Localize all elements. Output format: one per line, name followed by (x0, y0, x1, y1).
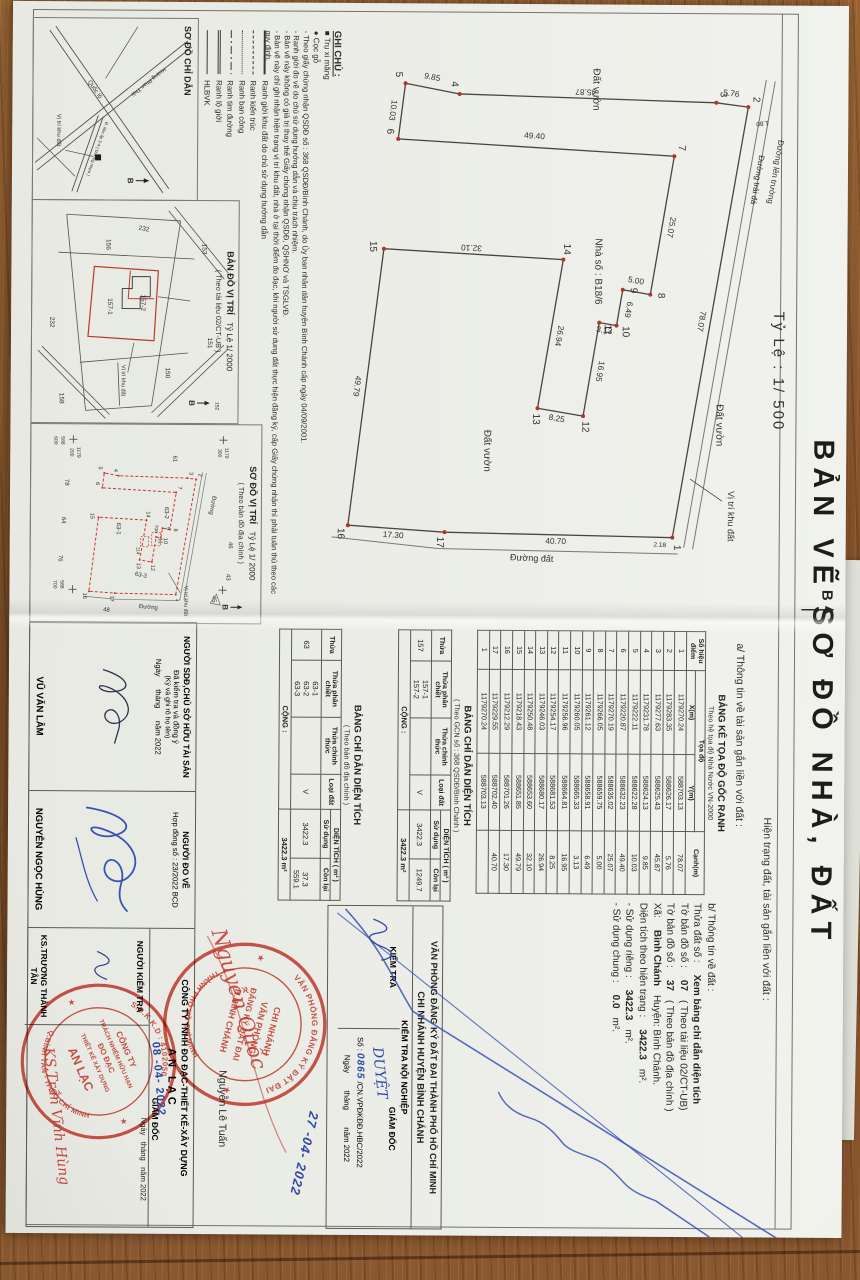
boundary-corner-dot (161, 527, 163, 529)
edge-length-label: 49.40 (524, 130, 546, 141)
coord-cell: 588624.13 (639, 754, 651, 831)
parcel-number-label: 158 (58, 393, 65, 404)
boundary-corner-dot (396, 137, 400, 141)
corner-number: 3 (188, 472, 194, 475)
land-info-value: 37 (663, 980, 677, 991)
edge-length-label: 9.85 (424, 70, 442, 83)
coord-cell: 13 (536, 631, 548, 670)
land-info-note: ( Theo tài liệu 02/CT-UB) (675, 1000, 689, 1111)
boundary-corner-dot (175, 594, 177, 596)
section-a-heading: a/ Thông tin về tài sản gắn liền với đất… (733, 643, 746, 827)
sketch-boundary (41, 346, 109, 414)
coord-cell: 1179218.43 (512, 669, 524, 753)
location-map-source: ( Theo tài liệu 02/CT-UB ) (213, 200, 223, 422)
grid-cross (218, 586, 226, 594)
owner-signature-cell: NGƯỜI SDĐ,CHỦ SỞ HỮU TÀI SẢN Đã kiểm tra… (29, 622, 196, 792)
legend-label: Ranh kiến trúc (248, 80, 257, 130)
edge-length-label: 5.00 (627, 274, 645, 287)
coord-cell: 588703.13 (674, 754, 686, 831)
land-info-row: Tờ bản đồ số :37( Theo bản đồ địa chính … (662, 903, 677, 1112)
area-data-row: 6363-163-263-3V3422.3 37.3559.1 (290, 629, 322, 900)
road-name-label: Đường (207, 495, 216, 515)
registry-office-block: VĂN PHÒNG ĐĂNG KÝ ĐẤT ĐAI THÀNH PHỐ HỒ C… (326, 905, 444, 1230)
land-info-block: b/ Thông tin về đất :Thửa đất số :Xem bả… (607, 903, 717, 1112)
con-lai-cell: 37.3559.1 (290, 859, 320, 901)
parcel-number-label: 157-1 (106, 298, 113, 315)
area-table-subtitle: ( Theo GCN số : 368 QSDĐ/Bình Chánh ) (452, 630, 463, 902)
land-info-heading: b/ Thông tin về đất : (703, 903, 718, 1112)
coord-cell: 588632.23 (616, 754, 628, 831)
grid-cross (69, 435, 77, 443)
road-name-label: Đ. liên ấp 3-4 ( Đường nhựa ) (86, 121, 110, 177)
coord-cell: 588622.28 (627, 754, 639, 831)
col-point: Số hiệu điểm (686, 632, 705, 671)
land-info-value: 3422.3 (622, 990, 636, 1021)
surveyor-signature-cell: NGƯỜI ĐO VẼ Hợp đồng số : 23/2022 BCD NG… (28, 791, 195, 929)
area-table-subtitle: ( Theo bản đồ địa chính ) (342, 629, 353, 901)
north-arrow: B (799, 590, 835, 617)
coord-cell: 16 (501, 630, 513, 669)
index-map-title: SƠ ĐỒ CHỈ DẪN (182, 26, 192, 96)
coord-cell: 588635.02 (604, 754, 616, 831)
document-sheet: BẢN VẼ SƠ ĐỒ NHÀ, ĐẤT Hiện trạng đất, tà… (5, 1, 849, 1238)
land-info-note: ( Theo bản đồ địa chính ) (662, 1000, 676, 1112)
grid-label: 1179 (75, 447, 81, 458)
total-label-cell: CỘNG : (279, 629, 292, 809)
check-cell: KIỂM TRA (338, 906, 401, 1029)
document-title: BẢN VẼ SƠ ĐỒ NHÀ, ĐẤT (802, 156, 842, 1230)
col-y: Y(m) (685, 754, 695, 831)
boundary-corner-dot (382, 247, 386, 251)
location-map-title-text: BẢN ĐỒ VỊ TRÍ (225, 251, 235, 315)
legend-label: Ranh giới khu đất do chủ sử dụng hướng d… (259, 80, 269, 239)
grid-cross (219, 436, 227, 444)
coordinate-table: BẢNG KÊ TỌA ĐỘ GỐC RANHTheo hệ tọa độ Nh… (476, 630, 727, 896)
coord-cell: 9 (582, 631, 594, 670)
sketch-boundary (67, 214, 181, 221)
document-number-label: Số : (356, 1037, 365, 1051)
grid-label: 1179 (223, 448, 229, 459)
boundary-corner-dot (648, 293, 652, 297)
boundary-corner-dot (88, 590, 90, 592)
land-info-key: - Sử dụng riêng : (622, 903, 636, 978)
boundary-corner-dot (581, 414, 585, 418)
coord-cell: 1179266.05 (593, 670, 605, 754)
area-col-header: Thửa (431, 630, 451, 661)
parcel-number-label: 706 (153, 525, 159, 533)
land-info-key: Tờ bản đồ số : (663, 903, 677, 968)
site-pointer-label: Vị trí khu đất (182, 586, 188, 617)
corner-number: 14 (561, 244, 572, 256)
stamp-star: ★ (66, 997, 78, 1008)
coord-row: 161179212.29588701.2617.30 (500, 630, 513, 893)
corner-number: 15 (89, 513, 95, 519)
area-table-title: BẢNG CHỈ DẪN DIỆN TÍCH (461, 630, 474, 902)
coord-row: 51179222.11588622.2810.03 (627, 631, 640, 894)
area-table-grid: ThửaThửa phân chiếtThửa chính thứcLoại đ… (397, 629, 453, 901)
road-name-label: Đường (139, 604, 158, 611)
north-letter: B (818, 590, 835, 601)
area-table-title: BẢNG CHỈ DẪN DIỆN TÍCH (351, 629, 364, 901)
coord-cell: 78.07 (673, 831, 685, 894)
area-total-row: CỘNG :3422.3 m² (397, 630, 411, 901)
north-letter: B (126, 178, 135, 184)
surveyor-cell-title: NGƯỜI ĐO VẼ (181, 831, 191, 888)
road-line (332, 537, 678, 554)
coord-cell: 17.30 (500, 830, 512, 893)
legend-line-sample (253, 30, 254, 74)
parcel-survey-map: 123456789101112131415161778.075.7645.879… (320, 29, 793, 580)
cadastral-sketch-box: 1179300117920058860058870012345678910111… (29, 423, 262, 624)
location-map-scale: Tỷ Lệ 1/ 2000 (225, 322, 234, 371)
legend-row: Ranh giới khu đất do chủ sử dụng hướng d… (258, 30, 271, 239)
land-info-note: m². (635, 1069, 649, 1084)
boundary-corner-dot (672, 154, 676, 158)
coord-cell: 3.13 (569, 831, 581, 894)
corner-number: 17 (108, 596, 114, 602)
sketch-boundary (80, 352, 188, 363)
owner-cell-title: NGƯỜI SDĐ,CHỦ SỞ HỮU TÀI SẢN (181, 636, 192, 778)
total-value-cell: 3422.3 m² (397, 810, 410, 901)
boundary-corner-dot (103, 472, 105, 474)
edge-length-label: 3.13 (596, 324, 614, 337)
land-info-value: 07 (676, 980, 690, 991)
sketch-road (49, 30, 164, 193)
area-data-row: 157157-1157-2V3422.31249.7 (409, 630, 432, 901)
land-info-key: - Sử dụng chung : (608, 903, 622, 983)
boundary-corner-dot (195, 478, 197, 480)
parcel-number-label: 63-1 (115, 523, 121, 536)
parcel-number-label: 232 (138, 225, 150, 234)
sketch-road (55, 26, 170, 189)
coord-row: 91179261.12588658.916.49 (581, 631, 594, 894)
site-pointer-label: Vị trí khu đất (726, 491, 736, 542)
area-col-con-lai: Còn lại (430, 859, 440, 901)
edge-length-label: 17.30 (383, 529, 405, 540)
coord-table-subtitle: Theo hệ tọa độ Nhà Nước VN-2000 (706, 631, 717, 895)
coord-cell: 1179212.29 (500, 669, 512, 753)
land-info-key: Diện tích theo hiện trạng : (635, 903, 649, 1018)
boundary-corner-dot (535, 406, 539, 410)
road-line (85, 596, 178, 600)
road-name-label: Đường trải đá (749, 155, 767, 206)
legend-line-sample (229, 30, 231, 74)
north-arrow-icon (144, 178, 150, 183)
corner-number: 5 (393, 72, 404, 78)
coord-row: 71179270.19588635.0225.07 (604, 631, 617, 894)
boundary-corner-dot (146, 519, 148, 521)
site-pointer-label: Vị trí khu đất (55, 114, 61, 147)
coord-cell: 2 (663, 631, 675, 670)
parcel-number-label: 63-2 (163, 507, 169, 520)
coord-cell: 1179250.48 (524, 670, 536, 754)
surveyor-contract: Hợp đồng số : 23/2022 BCD (170, 812, 180, 908)
parcel-number-label: 48 (103, 607, 111, 614)
coord-row: 131179246.03588680.1726.94 (534, 631, 547, 894)
office-date-line: Ngày tháng năm 2022 (342, 1055, 352, 1162)
site-pointer-line (168, 573, 180, 593)
land-info-key: Tờ bản đồ số : (676, 903, 690, 968)
coord-cell: 45.87 (650, 831, 662, 894)
phan-chiet-cell: 63-163-263-3 (291, 660, 321, 717)
boundary-corner-dot (118, 475, 120, 477)
notes-block: GHI CHÚ :■ Trụ xi măng● Cọc gỗ- Theo giấ… (259, 30, 342, 605)
land-info-row: Thửa đất số :Xem bảng chỉ dẫn diện tích (689, 903, 704, 1112)
coord-cell: 15 (513, 630, 525, 669)
grid-label: 300 (216, 449, 222, 458)
location-map-sketch: 153151152232156157-2157-1150232158Vị trí… (33, 200, 238, 421)
corner-number: 4 (449, 81, 460, 87)
col-coords: Tọa độ (695, 671, 705, 832)
parcel-number-label: 76 (57, 555, 63, 562)
parcel-number-label: 114 (135, 547, 141, 555)
road-line (684, 79, 767, 548)
coord-cell: 588681.53 (546, 754, 558, 831)
north-letter: B (187, 400, 196, 406)
owner-name: VŨ VĂN LÂM (33, 622, 45, 790)
coord-cell: 32.10 (523, 831, 535, 894)
loai-dat-cell: V (410, 775, 431, 810)
coord-cell: 1179270.24 (674, 670, 686, 754)
boundary-corner-dot (670, 536, 674, 540)
land-info-key: Xã: (649, 903, 663, 918)
area-col-su-dung: Sử dụng (430, 810, 440, 860)
boundary-corner-dot (746, 105, 750, 109)
stamp-star: ★ (255, 953, 267, 963)
site-pointer-line (65, 150, 93, 156)
document-number-value: 0865 (354, 1053, 365, 1079)
coord-cell (476, 830, 488, 893)
boundary-corner-dot (114, 592, 116, 594)
sketch-boundary (158, 297, 190, 301)
boundary-corner-dot (98, 516, 100, 518)
edge-length-label: 25.07 (665, 216, 678, 239)
coord-cell: 5.00 (592, 831, 604, 894)
owner-cell-sub2: (Ký và ghi rõ họ tên) (164, 675, 171, 738)
coord-cell: 1179254.17 (547, 670, 559, 754)
parcel-number-label: 64 (60, 517, 66, 524)
coord-cell: 1179277.63 (651, 670, 663, 754)
boundary-corner-dot (561, 258, 565, 262)
area-table-cadastral: BẢNG CHỈ DẪN DIỆN TÍCH( Theo bản đồ địa … (278, 629, 364, 902)
loai-dat-cell: V (291, 774, 321, 809)
coord-cell: 1179220.87 (616, 670, 628, 754)
coord-cell: 588653.60 (523, 753, 535, 830)
land-use-label: Đất vườn (590, 68, 602, 110)
site-pointer-label: Vị trí khu đất (120, 365, 126, 397)
legend-row: Ranh kiến trúc (247, 30, 260, 239)
parcel-number-label: 151 (206, 338, 213, 349)
area-col-header: Thửa phân chiết (321, 660, 341, 717)
site-marker (95, 154, 101, 160)
corner-number: 5 (97, 466, 103, 469)
edge-length-label: 78.07 (695, 310, 709, 333)
coord-cell: 40.70 (488, 830, 500, 893)
edge-length-label: 16.95 (594, 360, 607, 383)
stamp-star: ★ (118, 1116, 130, 1127)
corner-number: 7 (176, 486, 182, 489)
document-number-suffix: /CN.VPĐKĐĐ.HBC/2022 (355, 1081, 365, 1167)
coord-cell: 26.94 (534, 831, 546, 894)
legend-label: Ranh ban công (237, 80, 246, 133)
coord-row: 101179260.05588665.333.13 (569, 631, 582, 894)
area-col-header: Thửa (321, 629, 341, 660)
coord-cell: 6.49 (581, 831, 593, 894)
parcel-number-label: 61 (171, 456, 177, 463)
subject-parcel-outline (88, 266, 158, 340)
road-width-tick: 2.18 (653, 541, 666, 549)
coord-cell: 11 (559, 631, 571, 670)
coord-cell: 588680.17 (535, 754, 547, 831)
coord-cell: 17 (489, 630, 501, 669)
parcel-number-label: 150 (164, 367, 171, 378)
land-info-row: - Sử dụng chung :0.0m². (607, 903, 622, 1112)
coord-cell: 25.07 (604, 831, 616, 894)
coord-cell: 1179270.24 (477, 669, 489, 753)
land-info-value: 0.0 (608, 995, 622, 1009)
road-width-tick: 1.80 (755, 119, 769, 127)
coord-row: 11179270.24588703.1378.07 (673, 631, 686, 894)
road-line (184, 473, 206, 600)
grid-label: 588 (59, 436, 65, 445)
corner-number: 6 (94, 482, 100, 485)
cadastral-sketch-title: SƠ ĐỒ VỊ TRÍ Tỷ Lệ 1/ 2000 (247, 424, 258, 622)
boundary-corner-dot (442, 530, 446, 534)
coord-row: 111179256.96588664.8116.95 (558, 631, 571, 894)
land-info-note: Huyện: Bình Chánh. (648, 995, 662, 1085)
coord-row: 81179266.05588659.755.00 (592, 631, 605, 894)
area-header-row: ThửaThửa phân chiếtThửa chính thứcLoại đ… (330, 629, 342, 900)
approver-name: Nguyễn Lê Tuấn (216, 1070, 228, 1147)
coord-cell: 588626.17 (662, 754, 674, 831)
coord-cell: 1179283.35 (663, 670, 675, 754)
parcel-number-label: 43 (224, 574, 230, 581)
land-use-label: Đất vườn (481, 430, 493, 472)
office-name-line1: VĂN PHÒNG ĐĂNG KÝ ĐẤT ĐAI THÀNH PHỐ HỒ C… (428, 906, 440, 1228)
parcel-number-label: 63-3 (134, 571, 148, 580)
coord-cell: 8.25 (546, 831, 558, 894)
total-value-cell: 3422.3 m² (278, 809, 291, 900)
area-col-header: DIỆN TÍCH ( m² ) (330, 809, 341, 900)
check-label: KIỂM TRA (388, 906, 399, 1028)
coord-row: 151179218.43588651.8549.79 (511, 630, 524, 893)
coord-row: 31179277.63588625.4345.87 (650, 631, 663, 894)
land-use-label: Đất vườn (713, 404, 725, 446)
grid-cross (68, 585, 76, 593)
boundary-corner-dot (404, 81, 408, 85)
document-number-line: Số : 0865 /CN.VPĐKĐĐ.HBC/2022 (354, 1037, 366, 1168)
area-col-header: DIỆN TÍCH ( m² ) (440, 810, 451, 901)
land-info-key: Thửa đất số : (690, 903, 704, 963)
boundary-corner-dot (346, 523, 350, 527)
coord-cell: 5.76 (662, 831, 674, 894)
coord-cell: 588625.43 (651, 754, 663, 831)
coord-cell: 588651.85 (512, 753, 524, 830)
parcel-number-label: 153 (200, 244, 207, 255)
edge-length-label: 40.70 (545, 536, 566, 547)
area-col-header: Loại đất (321, 774, 341, 809)
land-info-value: Xem bảng chỉ dẫn diện tích (689, 975, 703, 1105)
area-col-header: Thửa chính thức (321, 717, 341, 774)
edge-length-label: 10.03 (387, 99, 400, 121)
coord-cell: 12 (547, 631, 559, 670)
coord-cell: 3 (652, 631, 664, 670)
site-pointer-line (690, 479, 722, 501)
phan-chiet-cell: 157-1157-2 (410, 661, 431, 718)
land-info-value: 3422.3 (635, 1029, 649, 1060)
boundary-corner-dot (187, 477, 189, 479)
dirt-road-label: Đường đất (510, 552, 554, 564)
edge-length-label: 32.10 (460, 243, 482, 254)
coord-cell: 588658.91 (581, 754, 593, 831)
legend-label: Ranh tim đường (225, 80, 234, 137)
chinh-thuc-cell (291, 717, 321, 774)
index-map-sketch: Quốc lộHoàng Phan TháiĐ. liên ấp 3-4 ( Đ… (35, 18, 198, 198)
thua-cell: 157 (410, 630, 431, 661)
corner-number: 6 (384, 129, 395, 135)
coord-table-title: BẢNG KÊ TỌA ĐỘ GỐC RANH (715, 631, 728, 895)
parcel-number-label: 78 (63, 479, 69, 486)
coord-row: 41179231.78588624.139.85 (639, 631, 652, 894)
parcel-number-label: 232 (48, 317, 55, 328)
total-label-cell: CỘNG : (398, 630, 411, 810)
coord-cell: 8 (594, 631, 606, 670)
location-map-box: 153151152232156157-2157-1150232158Vị trí… (30, 199, 239, 424)
corner-number: 8 (655, 293, 666, 299)
coord-cell: 5 (628, 631, 640, 670)
legend-line-sample (264, 30, 266, 74)
road-line (180, 472, 202, 599)
grid-label: 588 (58, 580, 64, 589)
corner-number: 1 (671, 545, 682, 551)
coord-cell: 1 (478, 630, 490, 669)
index-map-box: Quốc lộHoàng Phan TháiĐ. liên ấp 3-4 ( Đ… (32, 17, 199, 201)
su-dung-cell: 3422.3 (290, 809, 320, 859)
surveyor-name: NGUYỄN NGỌC HÙNG (32, 791, 44, 927)
corner-number: 16 (81, 593, 87, 599)
land-info-row: Tờ bản đồ số :07( Theo tài liệu 02/CT-UB… (675, 903, 690, 1112)
office-name-line2: CHI NHÁNH HUYỆN BÌNH CHÁNH (414, 906, 427, 1228)
sketch-boundary (58, 252, 194, 259)
corner-number: 17 (434, 537, 445, 549)
con-lai-cell: 1249.7 (409, 859, 430, 901)
chinh-thuc-cell (410, 718, 431, 775)
coord-cell: 588659.75 (593, 754, 605, 831)
coord-cell: 10 (571, 631, 583, 670)
col-edge: Cạnh(m) (685, 832, 704, 895)
coord-cell: 7 (605, 631, 617, 670)
area-col-su-dung: Sử dụng (320, 809, 330, 859)
edge-length-label: 26.94 (553, 325, 566, 348)
corner-number: 8 (172, 529, 178, 532)
sketch-boundary (37, 350, 105, 418)
coord-cell: 1179246.03 (535, 670, 547, 754)
corner-number: 14 (145, 511, 151, 517)
coord-cell: 9.85 (639, 831, 651, 894)
road-name-label: Đường lên trường (765, 139, 785, 204)
cadastral-sketch: 1179300117920058860058870012345678910111… (32, 424, 261, 621)
parcel-number-label: 46 (227, 542, 233, 549)
coord-row: 21179283.35588626.175.76 (662, 631, 675, 894)
coord-row: 11179270.24588703.13 (476, 630, 489, 893)
coord-cell: 1179261.12 (582, 670, 594, 754)
legend-label: Ranh lộ giới (214, 80, 223, 122)
coord-cell: 16.95 (558, 831, 570, 894)
su-dung-cell: 3422.3 (409, 810, 430, 860)
corner-number: 2 (750, 97, 761, 103)
land-info-row: - Sử dụng riêng :3422.3m². (621, 903, 636, 1112)
owner-cell-date: Ngày tháng năm 2022 (153, 659, 163, 755)
